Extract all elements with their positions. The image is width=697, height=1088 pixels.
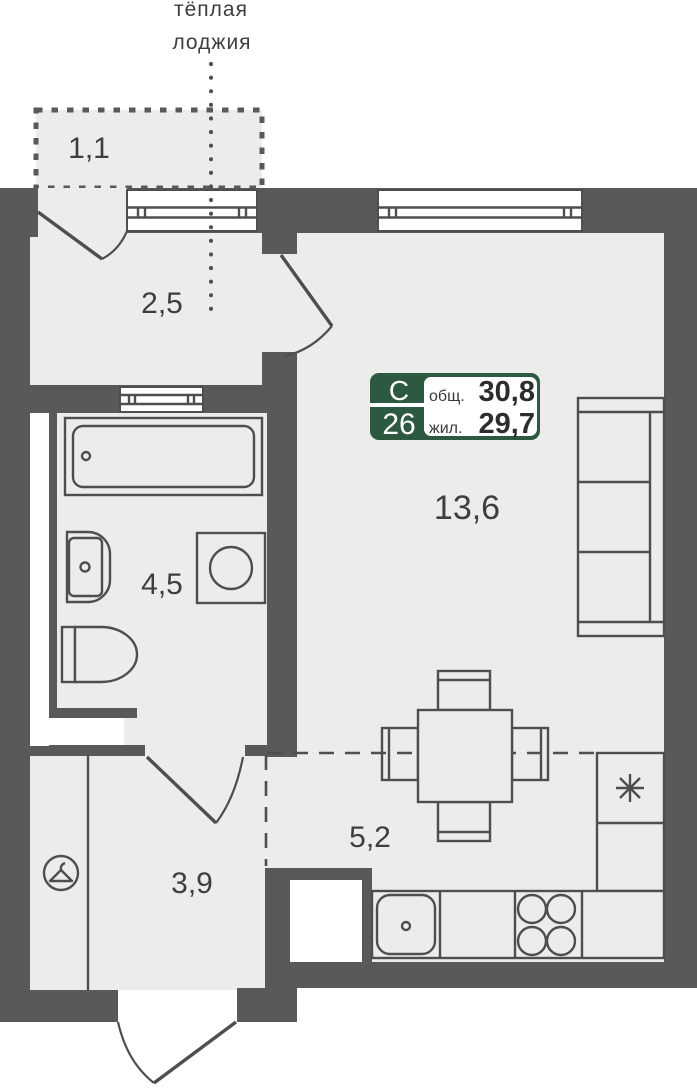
wall-bathroom-living: [267, 413, 297, 757]
wall-right: [664, 188, 697, 988]
shaft-center-inset: [290, 880, 362, 962]
entrance-door-icon: [118, 1022, 236, 1083]
shaft-left-bottom: [32, 718, 124, 745]
toilet-icon: [62, 627, 137, 682]
wall-bathroom-left-thin: [49, 413, 57, 718]
hallway-area-label: 3,9: [171, 867, 213, 900]
wall-bathroom-bottom: [48, 708, 137, 718]
floor-plan-page: тёплая лоджия 1,1 2,5 4,5 13,6 5,2 3,9 С…: [0, 0, 697, 1088]
balcony-area-label: 1,1: [68, 132, 110, 165]
washing-machine-icon: [197, 533, 265, 603]
window-living-icon: [378, 190, 582, 231]
wall-entrance-post: [237, 988, 297, 1022]
loggia-area-label: 2,5: [141, 287, 183, 320]
wall-bottom: [265, 962, 697, 988]
bathroom-area-label: 4,5: [141, 568, 183, 601]
hallway-floor: [30, 960, 265, 990]
badge-total-area-label: общ.: [429, 388, 465, 405]
kitchen-area-label: 5,2: [349, 821, 391, 854]
loggia-note-line2: лоджия: [172, 31, 251, 54]
badge-apartment-number: 26: [382, 408, 415, 441]
badge-plan-type: С: [389, 375, 409, 406]
info-badge: С 26 общ. 30,8 жил. 29,7: [370, 373, 540, 441]
asterisk-icon: [616, 774, 644, 802]
badge-living-area-value: 29,7: [479, 408, 535, 440]
shaft-left-strip: [30, 413, 49, 746]
sofa-icon: [578, 398, 664, 636]
balcony-door-opening: [38, 188, 127, 233]
wall-door-post-top: [262, 233, 297, 254]
wall-top-left-corner: [0, 188, 38, 237]
window-loggia-icon: [127, 190, 257, 231]
chair-top-icon: [438, 671, 490, 710]
chair-bottom-icon: [438, 802, 490, 841]
window-bathroom-icon: [120, 387, 203, 412]
bathtub-icon: [65, 418, 262, 495]
living-room-area-label: 13,6: [434, 489, 500, 527]
badge-total-area-value: 30,8: [479, 376, 535, 408]
dining-table-icon: [418, 710, 512, 802]
badge-living-area-label: жил.: [429, 420, 462, 437]
wall-left: [0, 188, 30, 1022]
wall-hallway-top: [30, 745, 145, 756]
loggia-note-line1: тёплая: [174, 0, 248, 21]
wall-bottom-left: [0, 990, 118, 1022]
wall-hallway-top-post: [245, 745, 297, 756]
kitchen-counter-bottom: [372, 891, 664, 958]
floor-plan-svg: тёплая лоджия 1,1 2,5 4,5 13,6 5,2 3,9 С…: [0, 0, 697, 1088]
washbasin-icon: [67, 532, 110, 602]
wall-door-post-bottom: [262, 352, 297, 385]
kitchen-counter-right: [597, 753, 664, 891]
